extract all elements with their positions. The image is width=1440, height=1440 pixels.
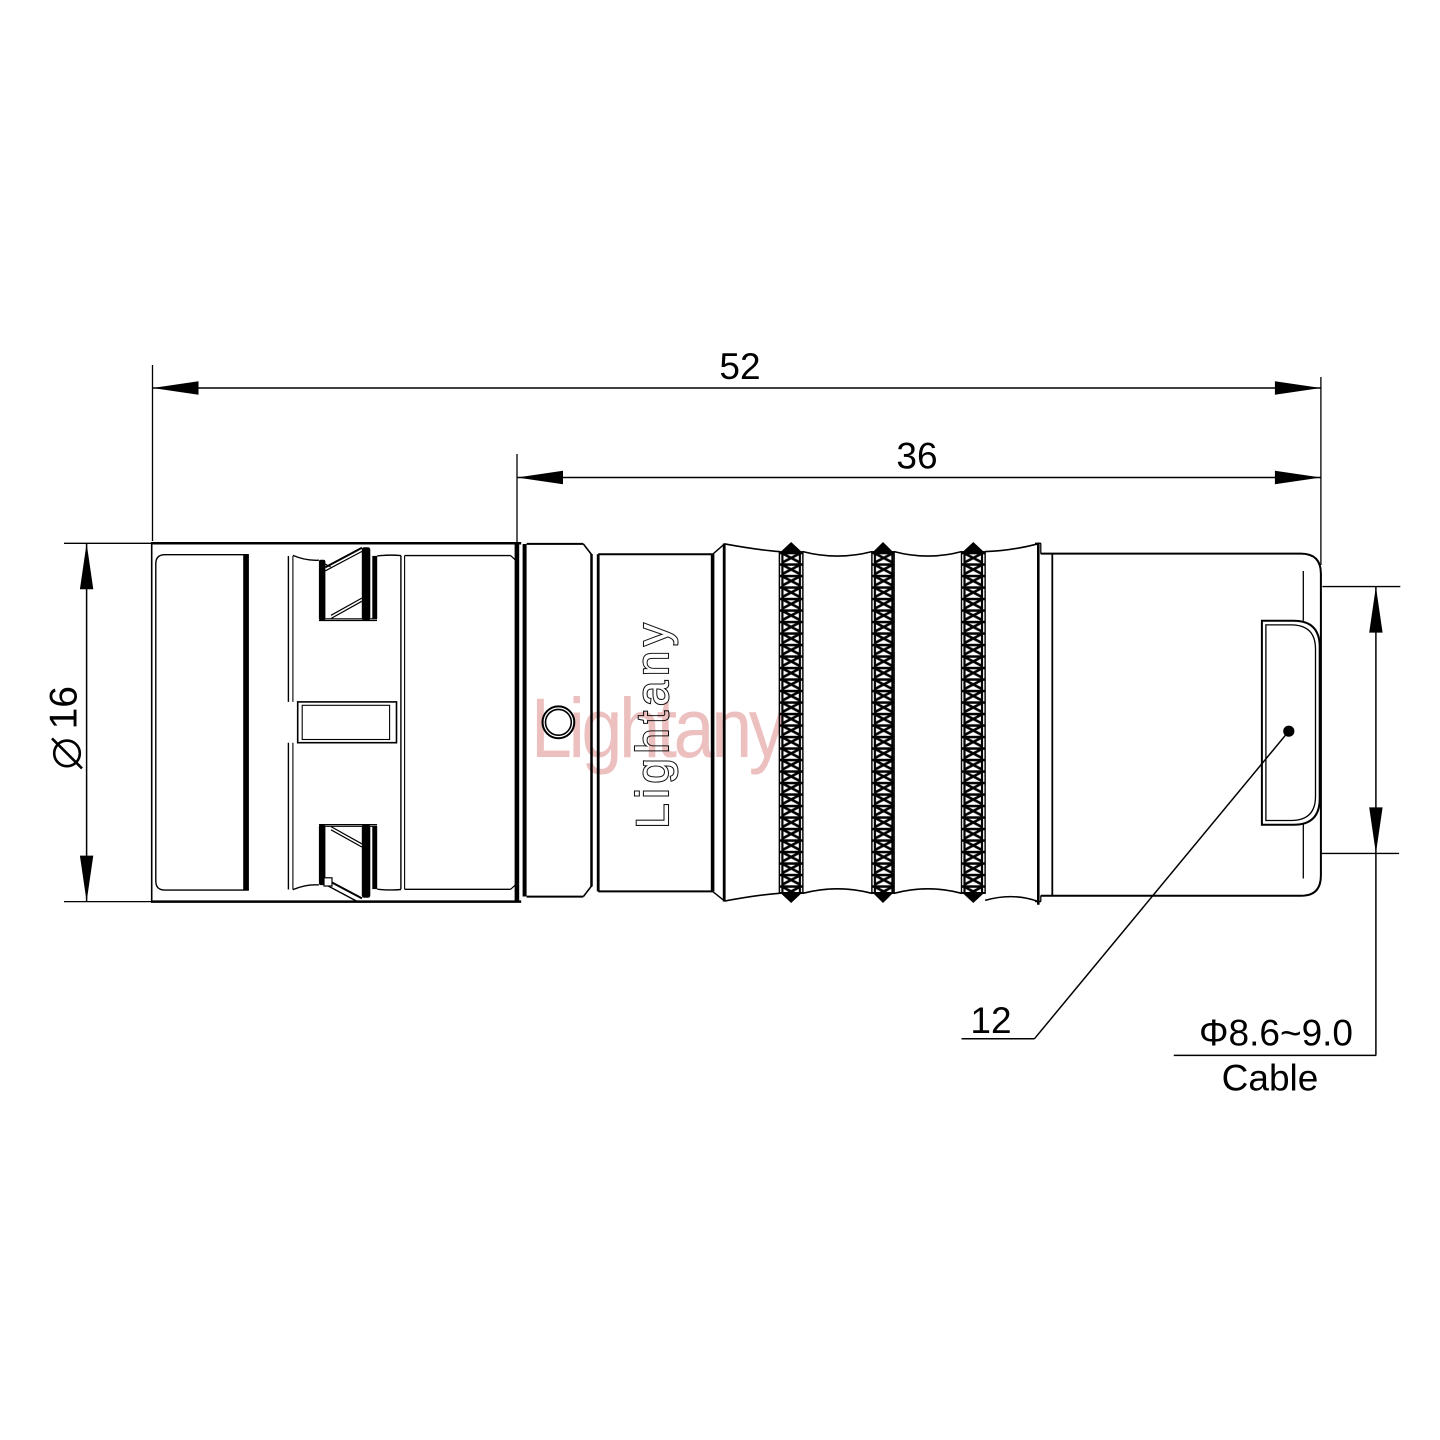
svg-text:Lightany: Lightany bbox=[531, 681, 786, 775]
